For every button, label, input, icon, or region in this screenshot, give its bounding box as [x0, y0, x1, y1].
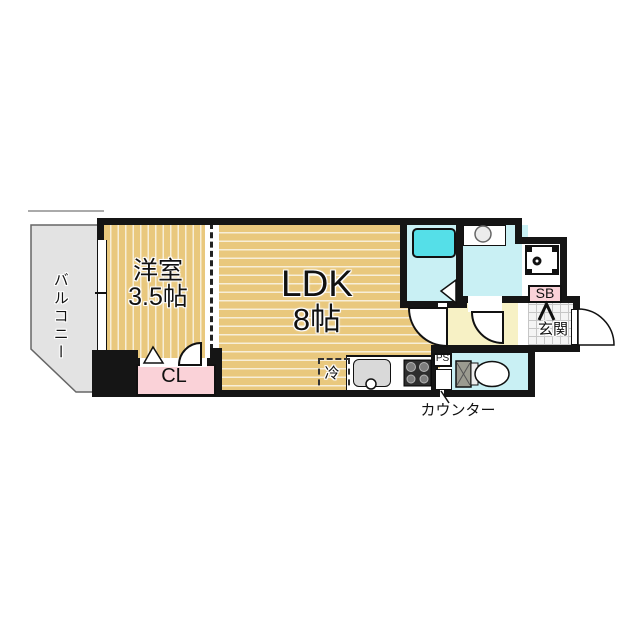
closet-label: CL — [136, 366, 212, 387]
ldk-name: LDK — [252, 265, 382, 304]
western-room-label: 洋室 3.5帖 — [110, 258, 206, 311]
counter-box — [435, 369, 452, 390]
wall-segment — [456, 218, 463, 303]
wall-segment — [97, 218, 104, 242]
wall-segment — [573, 296, 580, 310]
doorway-gap-ldk-hall — [438, 303, 447, 345]
sliding-partition-track — [205, 223, 219, 358]
sliding-partition-dashed-line — [210, 223, 213, 350]
western-room-size: 3.5帖 — [110, 284, 206, 310]
refrigerator-label: 冷 — [318, 366, 346, 382]
wall-segment — [528, 345, 580, 352]
doorway-gap-washroom — [468, 296, 502, 312]
balcony-label: バルコニー — [52, 252, 68, 382]
western-room-name: 洋室 — [110, 258, 206, 284]
entrance-label: 玄関 — [529, 322, 577, 338]
ldk-size: 8帖 — [252, 304, 382, 337]
toilet-room-floor — [452, 353, 528, 390]
window-center-tick — [95, 292, 107, 294]
wall-segment — [444, 390, 535, 397]
shoe-box-label: SB — [528, 286, 562, 301]
balcony-window — [97, 240, 107, 350]
pipe-space-label: PS — [433, 354, 452, 365]
wall-segment — [502, 296, 530, 303]
wall-segment — [431, 345, 535, 353]
entrance-door-swing — [578, 309, 614, 345]
kitchen-sink — [353, 359, 391, 387]
ldk-label: LDK 8帖 — [252, 265, 382, 336]
boundary-line — [28, 210, 104, 212]
vanity-unit — [463, 225, 506, 246]
wall-segment — [222, 390, 440, 397]
floor-plan-canvas: バルコニー 洋室 3.5帖 LDK 8帖 CL 冷 SB 玄関 PS カウンター — [0, 0, 640, 640]
bathtub — [412, 228, 456, 258]
wall-segment — [400, 218, 407, 308]
wall-segment — [460, 296, 468, 303]
counter-label: カウンター — [418, 403, 498, 419]
